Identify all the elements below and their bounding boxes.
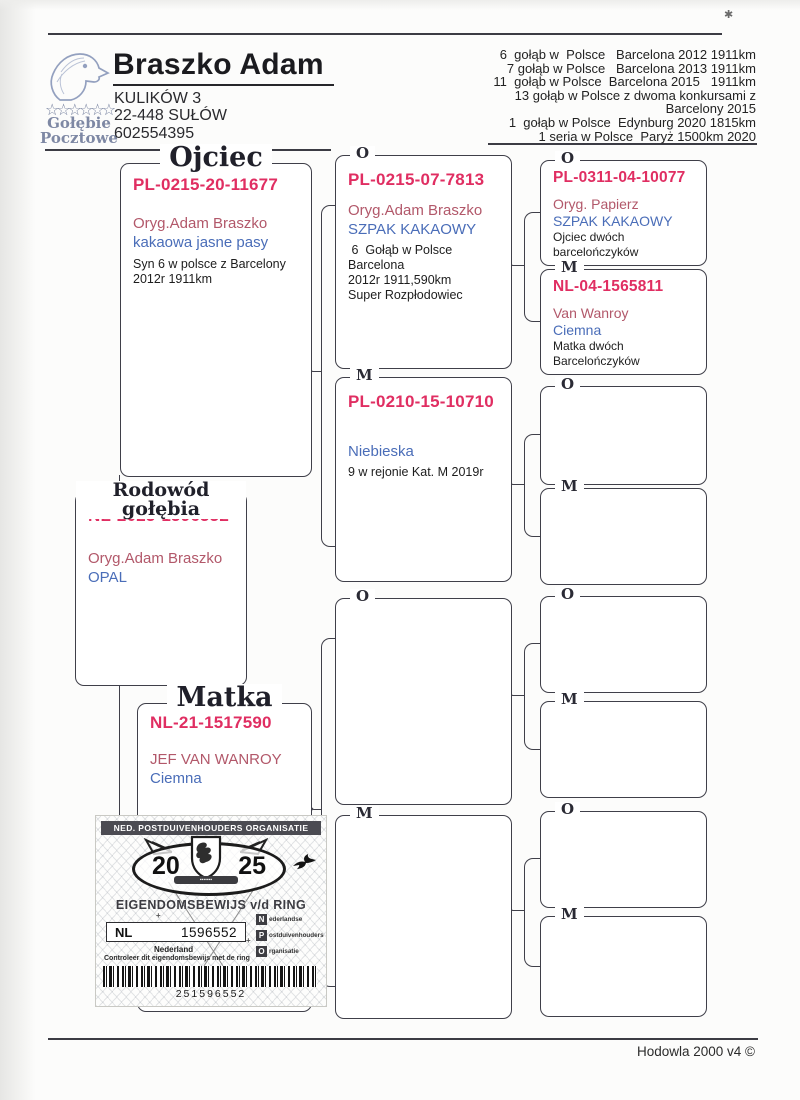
npo-initial: N	[256, 914, 267, 925]
stamp-plus-mark: +	[156, 911, 161, 920]
address-line-1: KULIKÓW 3	[114, 90, 201, 107]
ring-number: PL-0215-07-7813	[348, 170, 503, 190]
ring-number: PL-0215-20-11677	[133, 175, 303, 195]
npo-rest: ederlandse	[269, 916, 302, 923]
npo-initial: P	[256, 930, 267, 941]
generation-label: O	[555, 151, 580, 167]
color-line: Niebieska	[348, 443, 503, 462]
logo-text-line2: Pocztowe	[36, 129, 122, 147]
address-line-2: 22-448 SUŁÓW	[114, 107, 227, 124]
generation-label: M	[555, 907, 584, 923]
note-line: 2012r 1911km	[133, 272, 303, 287]
result-line: 1 seria w Polsce Paryż 1500km 2020	[493, 130, 756, 144]
gen2-box-3: O	[335, 598, 512, 805]
pigeon-head-icon	[46, 50, 112, 104]
owner-line: Van Wanroy	[553, 305, 698, 322]
generation-label: O	[555, 377, 580, 393]
result-line: Barcelony 2015	[493, 102, 756, 116]
note-line: Syn 6 w polsce z Barcelony	[133, 257, 303, 272]
stamp-country-code: NL	[115, 925, 132, 940]
gen2-box-4: M	[335, 815, 512, 1019]
bracket-father-parents	[321, 205, 336, 547]
ring-number: NL-21-1517590	[150, 713, 303, 733]
gen2-box-2: M PL-0210-15-10710 Niebieska 9 w rejonie…	[335, 377, 512, 582]
generation-label: M	[555, 260, 584, 276]
note-line: 2012r 1911,590km	[348, 273, 503, 288]
software-credit: Hodowla 2000 v4 ©	[637, 1044, 755, 1059]
note-line: Ojciec dwóch barcelończyków	[553, 230, 698, 260]
gen3-box-6: M	[540, 701, 707, 798]
npo-initial: O	[256, 946, 267, 957]
color-line: Ciemna	[150, 770, 303, 789]
note-line: 9 w rejonie Kat. M 2019r	[348, 465, 503, 480]
generation-label: O	[555, 587, 580, 603]
stamp-banner: ▪▪▪▪▪▪▪	[174, 876, 238, 884]
owner-line: JEF VAN WANROY	[150, 751, 303, 770]
stamp-year-right: 25	[238, 854, 266, 879]
result-line: 13 gołąb w Polsce z dwoma konkursami z	[493, 89, 756, 103]
scan-edge-shade	[0, 0, 42, 1100]
top-divider	[48, 33, 722, 35]
stamp-ring-number: 1596552	[181, 925, 237, 940]
gen2-box-1: O PL-0215-07-7813 Oryg.Adam Braszko SZPA…	[335, 155, 512, 369]
print-mark: ✱	[724, 8, 733, 21]
result-line: 7 gołąb w Polsce Barcelona 2013 1911km	[493, 62, 756, 76]
gen3-box-8: M	[540, 916, 707, 1017]
npo-rest: rganisatie	[269, 948, 299, 955]
owner-line: Oryg.Adam Braszko	[88, 550, 238, 569]
stamp-ring-id-box: NL 1596552	[106, 922, 246, 942]
npo-rest: ostduivenhouders	[269, 932, 324, 939]
stamp-plus-mark: +	[246, 936, 251, 945]
barcode-number: 251596552	[96, 988, 326, 1000]
footer-divider	[48, 1038, 758, 1040]
bracket-g3-pair4	[524, 858, 541, 967]
note-line: 6 Gołąb w Polsce Barcelona	[348, 243, 503, 273]
dove-icon	[292, 854, 316, 871]
result-line: 11 gołąb w Polsce Barcelona 2015 1911km	[493, 75, 756, 89]
generation-label: M	[350, 806, 379, 822]
note-line: Matka dwóch Barcelończyków	[553, 339, 698, 369]
stamp-org-title: NED. POSTDUIVENHOUDERS ORGANISATIE	[101, 821, 321, 835]
bracket-g3-pair1	[524, 212, 541, 322]
result-line: 6 gołąb w Polsce Barcelona 2012 1911km	[493, 48, 756, 62]
owner-line: Oryg.Adam Braszko	[348, 202, 503, 221]
owner-line	[348, 424, 503, 443]
generation-label: O	[350, 589, 375, 605]
ring-number: PL-0311-04-10077	[553, 169, 698, 187]
gen3-box-2: M NL-04-1565811 Van Wanroy Ciemna Matka …	[540, 269, 707, 375]
gen3-box-3: O	[540, 386, 707, 485]
ring-number: NL-04-1565811	[553, 278, 698, 296]
pedigree-document: ✱ ☆☆☆☆☆☆ Gołębie Pocztowe Braszko Adam K…	[0, 0, 800, 1100]
stamp-control-text: Controleer dit eigendomsbewijs met de ri…	[104, 955, 250, 962]
bracket-g3-pair3	[524, 643, 541, 750]
color-line: Ciemna	[553, 322, 698, 339]
barcode	[103, 966, 317, 987]
color-line: kakaowa jasne pasy	[133, 234, 303, 253]
box-title: Matka	[138, 684, 311, 711]
box-title: Rodowód gołębia	[76, 481, 246, 519]
race-results: 6 gołąb w Polsce Barcelona 2012 1911km 7…	[493, 48, 756, 143]
generation-label: O	[555, 802, 580, 818]
result-line: 1 gołąb w Polsce Edynburg 2020 1815km	[493, 116, 756, 130]
father-box: Ojciec PL-0215-20-11677 Oryg.Adam Braszk…	[120, 163, 312, 477]
ring-ownership-stamp: + + NED. POSTDUIVENHOUDERS ORGANISATIE 2…	[95, 815, 327, 1007]
box-title: Ojciec	[121, 144, 311, 171]
generation-label: M	[555, 479, 584, 495]
stamp-ownership-title: EIGENDOMSBEWIJS v/d RING	[96, 898, 326, 912]
generation-label: M	[350, 368, 379, 384]
stamp-crest-icon	[189, 834, 223, 880]
gen3-box-1: O PL-0311-04-10077 Oryg. Papierz SZPAK K…	[540, 160, 707, 266]
note-line: Super Rozpłodowiec	[348, 288, 503, 303]
stamp-country: Nederland	[154, 945, 193, 954]
scan-edge-shade-top	[0, 0, 800, 10]
color-line: SZPAK KAKAOWY	[348, 221, 503, 240]
owner-line: Oryg. Papierz	[553, 196, 698, 213]
subject-box: Rodowód gołębia NL-2025-1596552 Oryg.Ada…	[75, 492, 247, 686]
bracket-g3-pair2	[524, 434, 541, 537]
connector-subject-mother	[119, 684, 120, 815]
gen3-box-7: O	[540, 811, 707, 908]
color-line: SZPAK KAKAOWY	[553, 213, 698, 230]
generation-label: O	[350, 146, 375, 162]
stamp-npo-block: N ederlandse P ostduivenhouders O rganis…	[256, 914, 320, 962]
gen3-box-5: O	[540, 596, 707, 693]
color-line: OPAL	[88, 569, 238, 588]
gen3-box-4: M	[540, 488, 707, 585]
ring-number: PL-0210-15-10710	[348, 392, 503, 412]
phone-number: 602554395	[114, 125, 194, 142]
generation-label: M	[555, 692, 584, 708]
breeder-name: Braszko Adam	[113, 48, 334, 86]
owner-line: Oryg.Adam Braszko	[133, 215, 303, 234]
